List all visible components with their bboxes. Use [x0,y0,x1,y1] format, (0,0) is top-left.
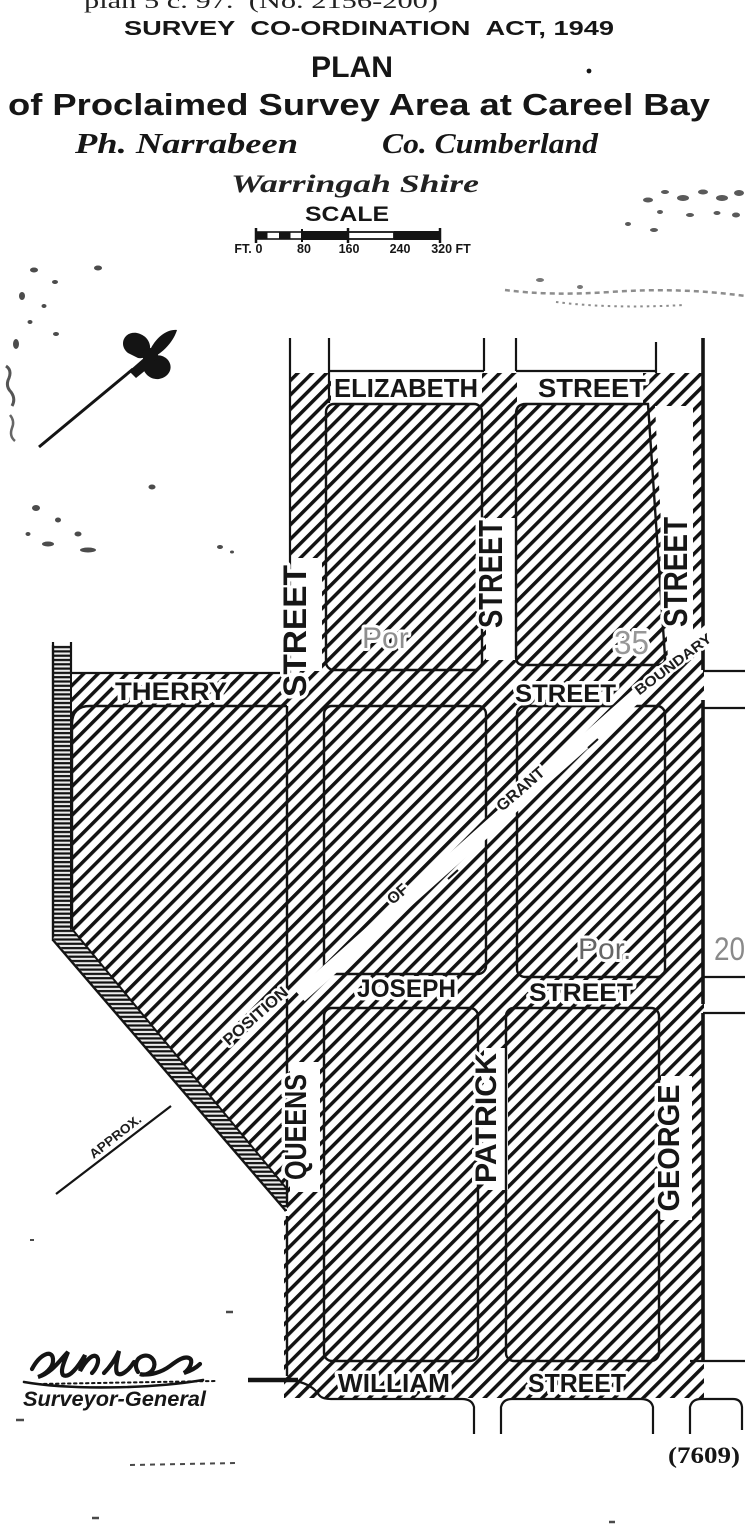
svg-text:STREET: STREET [657,517,694,627]
svg-text:80: 80 [297,242,311,256]
svg-text:Ph. Narrabeen: Ph. Narrabeen [74,129,298,160]
svg-text:STREET: STREET [515,680,616,708]
svg-text:160: 160 [339,242,360,256]
svg-text:WILLIAM: WILLIAM [338,1368,450,1398]
svg-text:320 FT: 320 FT [431,242,471,256]
svg-text:JOSEPH: JOSEPH [357,975,456,1003]
svg-text:FT.: FT. [234,242,251,256]
svg-text:Por: Por [362,622,409,655]
svg-text:GEORGE: GEORGE [651,1085,686,1212]
svg-text:0: 0 [256,242,263,256]
svg-text:35: 35 [614,624,649,661]
svg-text:STREET: STREET [529,979,633,1007]
svg-text:Co. Cumberland: Co. Cumberland [382,129,599,160]
svg-text:PLAN: PLAN [311,51,393,84]
svg-text:PATRICK: PATRICK [470,1053,503,1183]
svg-text:QUEENS: QUEENS [278,1074,313,1180]
svg-text:STREET: STREET [472,520,509,628]
svg-text:of Proclaimed Survey Area at: of Proclaimed Survey Area at Careel Bay [8,87,711,122]
svg-text:240: 240 [390,242,411,256]
svg-text:SURVEY CO-ORDINATION ACT, 19: SURVEY CO-ORDINATION ACT, 1949 [124,18,614,40]
svg-text:THERRY: THERRY [115,678,227,706]
svg-text:Por.: Por. [578,933,631,966]
svg-text:SCALE: SCALE [305,203,389,226]
svg-text:STREET: STREET [538,373,646,403]
svg-text:Warringah Shire: Warringah Shire [231,171,479,198]
svg-text:STREET: STREET [528,1368,626,1398]
svg-text:STREET: STREET [277,565,313,697]
svg-text:plan 5 c. 97. (No. 2156-200): plan 5 c. 97. (No. 2156-200) [84,0,438,13]
svg-text:Surveyor-General: Surveyor-General [23,1388,207,1411]
svg-text:(7609): (7609) [668,1443,740,1468]
svg-text:20: 20 [714,931,745,967]
svg-text:ELIZABETH: ELIZABETH [334,373,478,403]
